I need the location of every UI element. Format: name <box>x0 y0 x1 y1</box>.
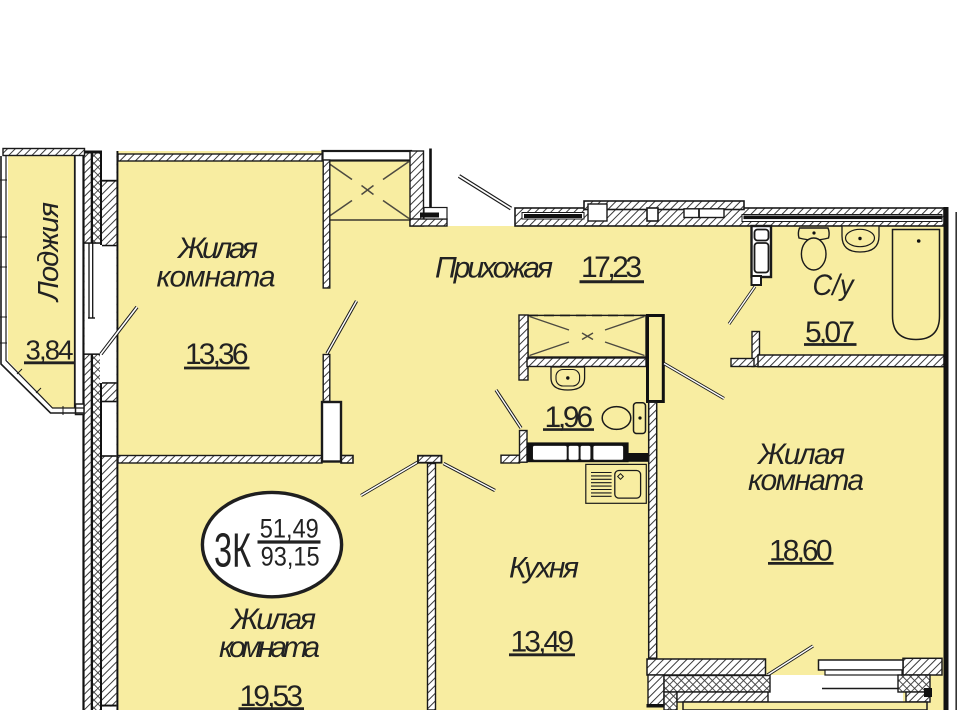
svg-text:комната: комната <box>748 464 864 497</box>
svg-text:3,84: 3,84 <box>26 335 74 366</box>
svg-text:51,49: 51,49 <box>260 514 319 544</box>
svg-text:комната: комната <box>219 631 320 664</box>
svg-text:3К: 3К <box>214 525 251 578</box>
svg-text:Прихожая: Прихожая <box>435 252 553 285</box>
svg-text:Кухня: Кухня <box>509 552 579 585</box>
svg-text:С/у: С/у <box>813 269 856 302</box>
svg-text:комната: комната <box>157 261 276 294</box>
svg-text:19,53: 19,53 <box>240 680 304 710</box>
svg-text:93,15: 93,15 <box>261 542 320 572</box>
svg-text:17,23: 17,23 <box>581 251 642 284</box>
svg-text:Лоджия: Лоджия <box>33 202 65 303</box>
svg-text:13,36: 13,36 <box>185 338 249 371</box>
